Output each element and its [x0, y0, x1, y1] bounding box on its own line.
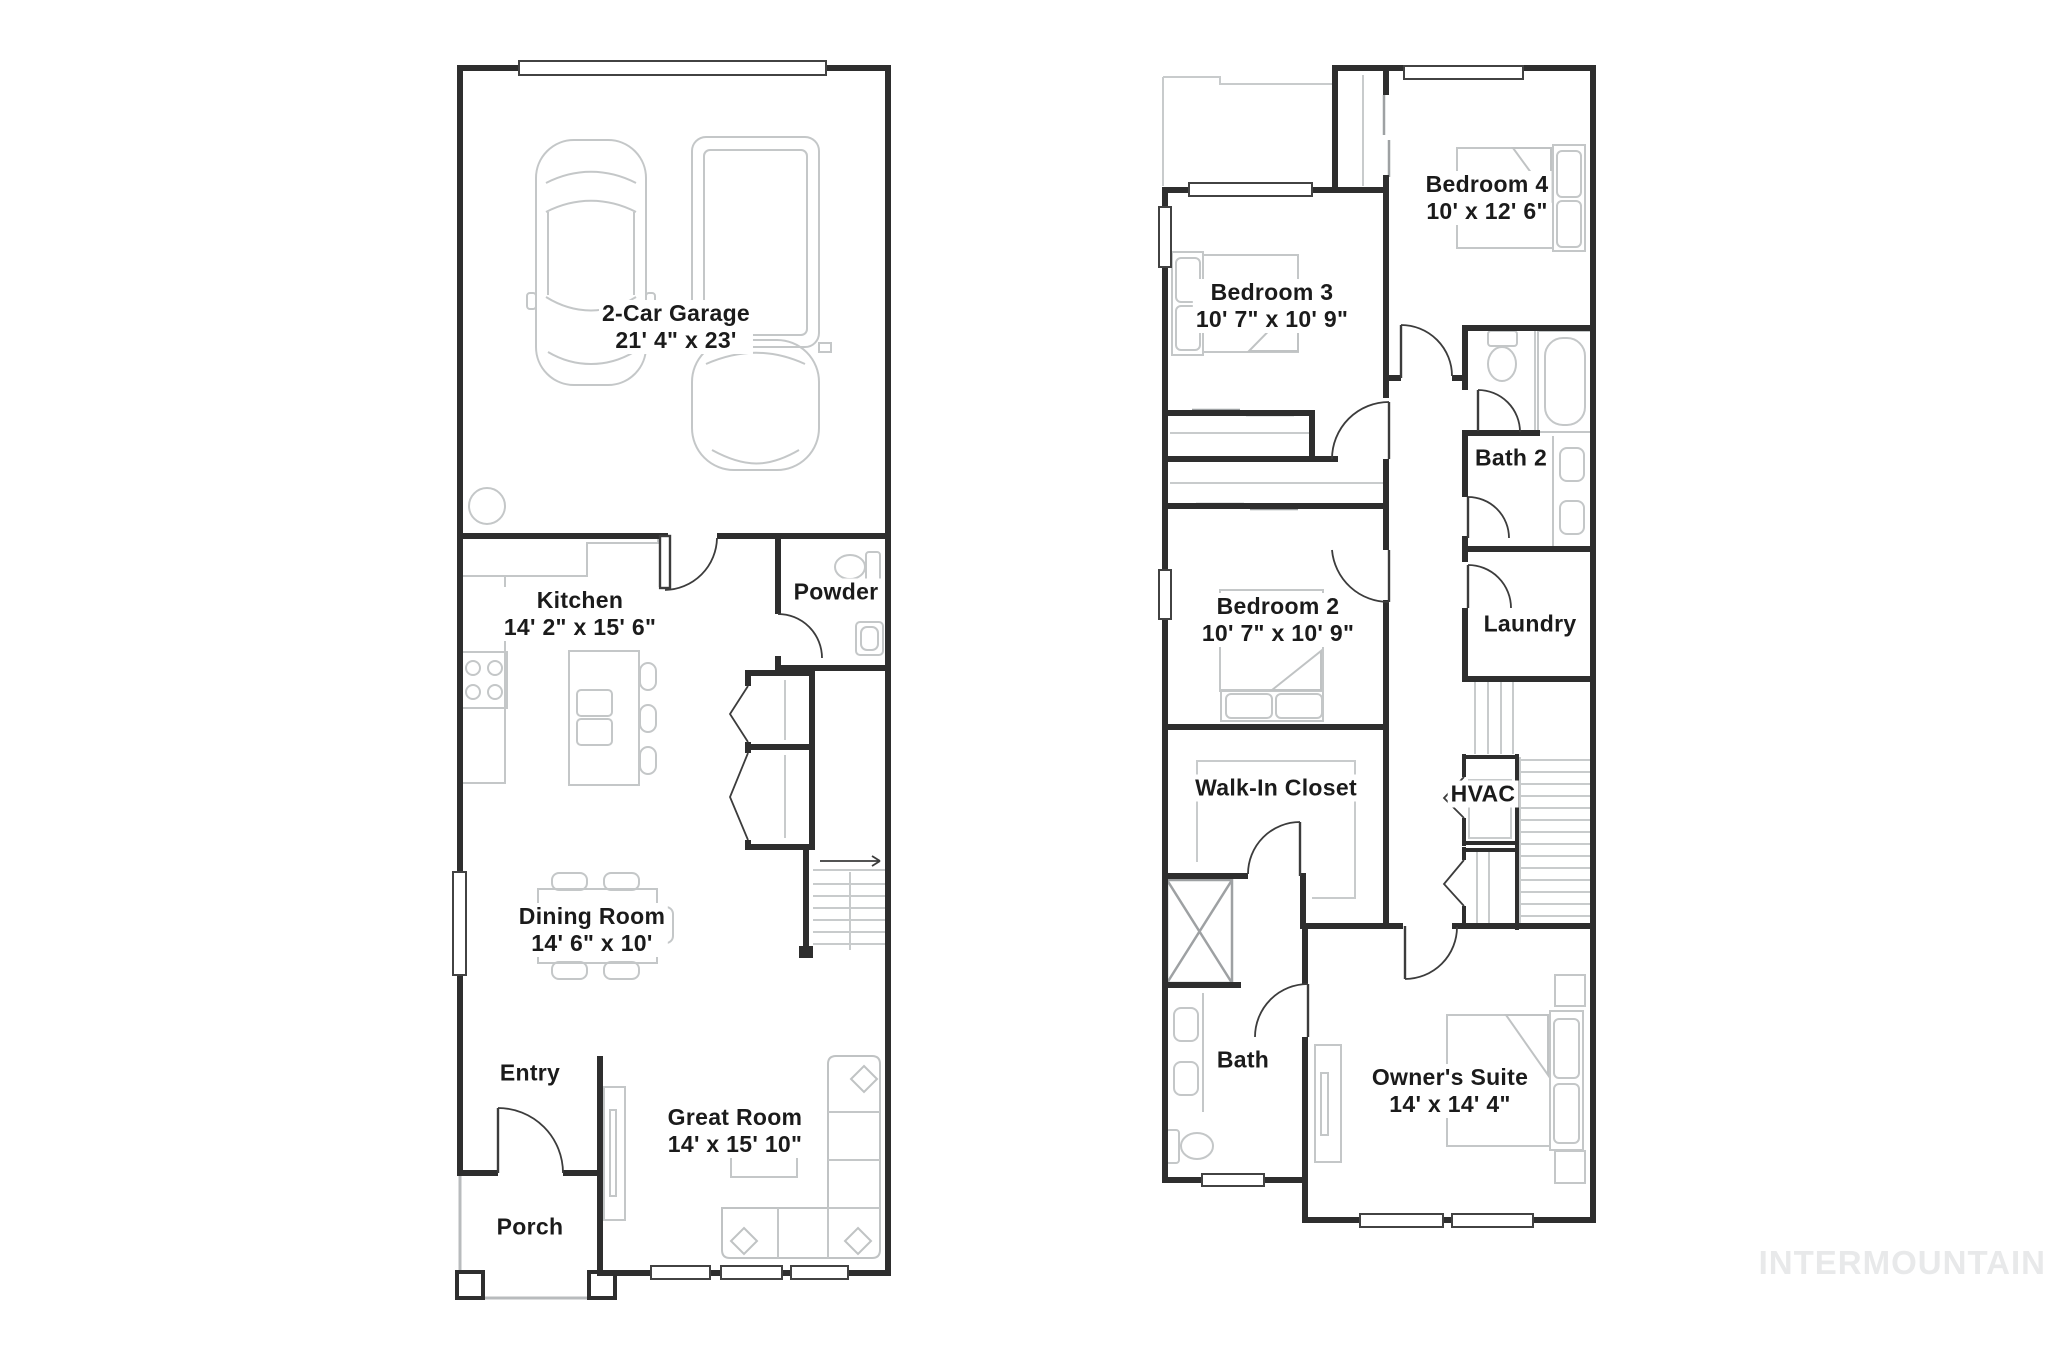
room-label-bath2: Bath 2	[1472, 445, 1550, 472]
room-label-dining: Dining Room14' 6" x 10'	[516, 903, 668, 957]
room-label-great-room: Great Room14' x 15' 10"	[665, 1104, 806, 1158]
room-label-bedroom2: Bedroom 210' 7" x 10' 9"	[1199, 593, 1357, 647]
floorplan-linework	[0, 0, 2048, 1365]
kitchen-island	[569, 651, 656, 785]
room-label-laundry: Laundry	[1481, 611, 1580, 638]
shower-icon	[1167, 880, 1232, 983]
room-label-bath: Bath	[1214, 1047, 1272, 1074]
floorplan-canvas: 2-Car Garage21' 4" x 23' Kitchen14' 2" x…	[0, 0, 2048, 1365]
floor1-walls	[457, 65, 891, 1276]
roof-outline	[1163, 77, 1334, 186]
room-label-kitchen: Kitchen14' 2" x 15' 6"	[501, 587, 659, 641]
owners-bath-fixtures	[1166, 993, 1213, 1163]
room-label-owners-suite: Owner's Suite14' x 14' 4"	[1369, 1064, 1531, 1118]
room-label-hvac: HVAC	[1448, 781, 1519, 808]
room-label-walk-in-closet: Walk-In Closet	[1192, 775, 1360, 802]
room-label-entry: Entry	[497, 1060, 563, 1087]
room-label-garage: 2-Car Garage21' 4" x 23'	[599, 300, 753, 354]
watermark-text: INTERMOUNTAIN	[1759, 1244, 2046, 1282]
room-label-bedroom3: Bedroom 310' 7" x 10' 9"	[1193, 279, 1351, 333]
water-heater-icon	[469, 488, 505, 524]
room-label-porch: Porch	[494, 1214, 567, 1241]
stairs-floor1	[813, 856, 886, 950]
bath2-fixtures	[1488, 331, 1592, 548]
kitchen-counter	[460, 539, 658, 783]
room-label-powder: Powder	[791, 579, 882, 606]
room-label-bedroom4: Bedroom 410' x 12' 6"	[1423, 171, 1552, 225]
